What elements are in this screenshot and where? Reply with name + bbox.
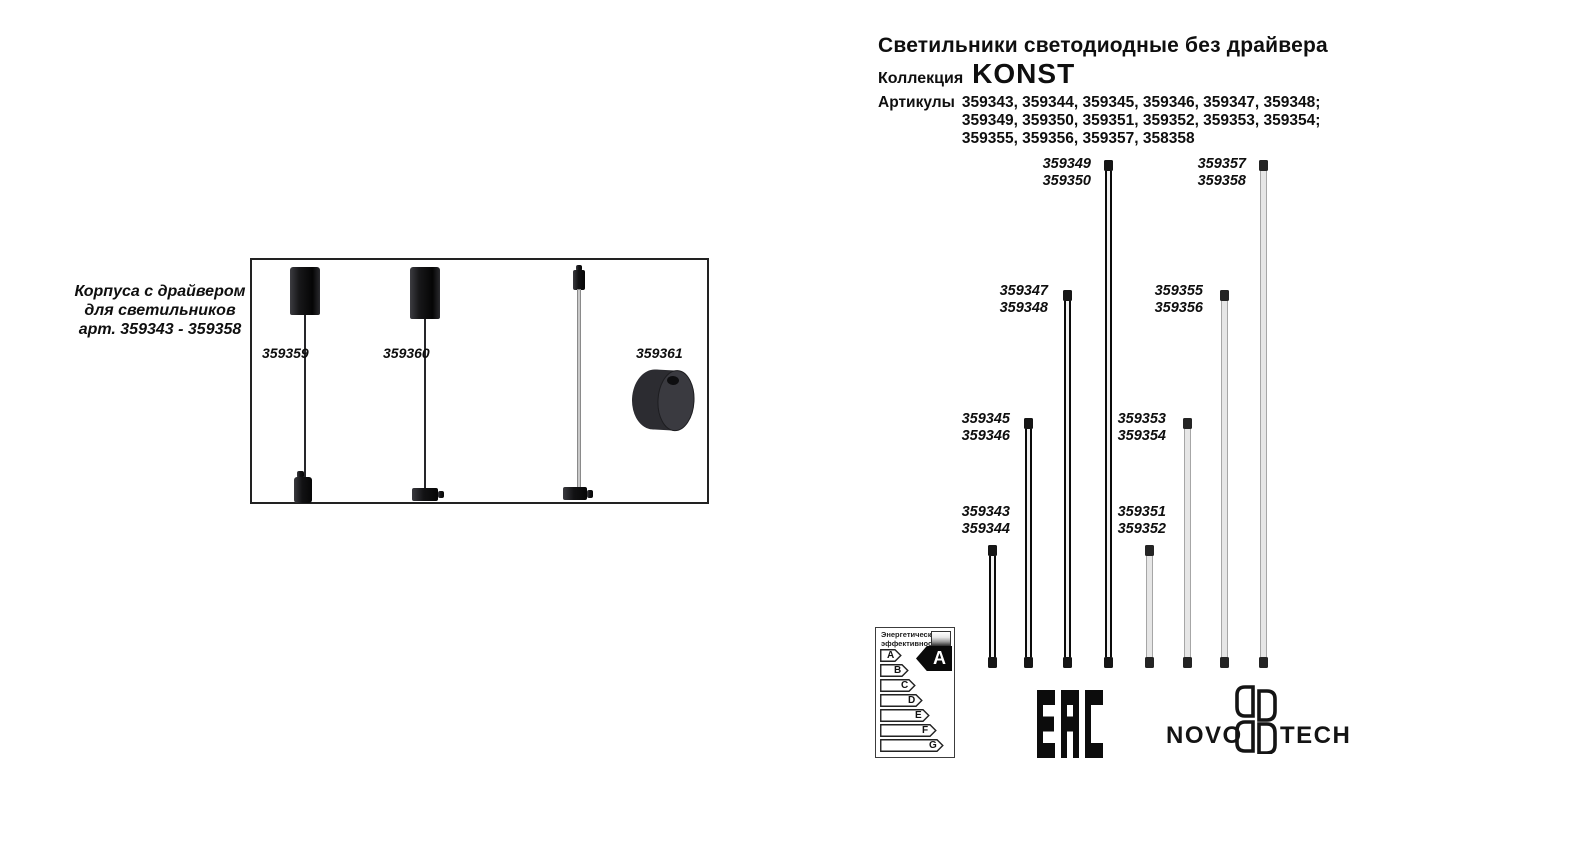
energy-class-row: A xyxy=(880,649,944,662)
brand-name-right: TECH xyxy=(1280,722,1351,750)
tube-label-359345-359346: 359345 359346 xyxy=(950,411,1010,444)
energy-gradient-icon xyxy=(931,631,951,648)
tube-label-359349-359350: 359349 359350 xyxy=(1031,156,1091,189)
white-suspension-cord-icon xyxy=(578,290,580,487)
caption-line: для светильников xyxy=(70,301,250,320)
driver-puck-icon xyxy=(628,366,699,433)
class-arrow-icon xyxy=(880,709,930,722)
caption-line: Корпуса с драйвером xyxy=(70,282,250,301)
tube-label-359357-359358: 359357 359358 xyxy=(1186,156,1246,189)
end-fitting-icon xyxy=(412,488,438,501)
part-label-359361: 359361 xyxy=(636,345,683,361)
collection-line: Коллекция KONST xyxy=(878,58,1075,90)
tube-label-359355-359356: 359355 359356 xyxy=(1143,283,1203,316)
energy-class-row: C xyxy=(880,679,944,692)
articles-line: 359349, 359350, 359351, 359352, 359353, … xyxy=(962,112,1321,130)
tube-359349-359350-icon xyxy=(1104,160,1113,668)
caption-line: арт. 359343 - 359358 xyxy=(70,320,250,339)
pendant-canopy-icon xyxy=(290,267,320,315)
tube-359343-359344-icon xyxy=(988,545,997,668)
eac-logo xyxy=(1037,690,1103,758)
tube-label-359343-359344: 359343 359344 xyxy=(950,504,1010,537)
catalog-page: Корпуса с драйвером для светильников арт… xyxy=(0,0,1587,858)
brand-emblem-icon xyxy=(1235,684,1277,754)
class-arrow-icon xyxy=(880,724,937,737)
end-fitting-icon xyxy=(294,477,312,503)
articles-block: Артикулы 359343, 359344, 359345, 359346,… xyxy=(878,94,1320,148)
page-title: Светильники светодиодные без драйвера xyxy=(878,34,1328,58)
articles-label: Артикулы xyxy=(878,94,955,148)
energy-class-scale: A B C D E F G xyxy=(880,649,944,754)
end-fitting-icon xyxy=(563,487,587,500)
class-arrow-icon xyxy=(880,694,923,707)
articles-lines: 359343, 359344, 359345, 359346, 359347, … xyxy=(962,94,1321,148)
tube-label-359353-359354: 359353 359354 xyxy=(1106,411,1166,444)
collection-label: Коллекция xyxy=(878,70,963,88)
energy-class-row: G xyxy=(880,739,944,752)
ceiling-grip-icon xyxy=(573,270,585,290)
tube-359357-359358-icon xyxy=(1259,160,1268,668)
energy-efficiency-label: Энергетическая эффективность A A B C D xyxy=(875,627,955,758)
tube-label-359351-359352: 359351 359352 xyxy=(1106,504,1166,537)
part-label-359359: 359359 xyxy=(262,345,309,361)
tube-359345-359346-icon xyxy=(1024,418,1033,668)
tube-359355-359356-icon xyxy=(1220,290,1229,668)
energy-class-row: B xyxy=(880,664,944,677)
articles-line: 359355, 359356, 359357, 358358 xyxy=(962,130,1321,148)
driver-housings-caption: Корпуса с драйвером для светильников арт… xyxy=(70,282,250,339)
pendant-canopy-icon xyxy=(410,267,440,319)
energy-class-row: F xyxy=(880,724,944,737)
tube-359351-359352-icon xyxy=(1145,545,1154,668)
cord-nub-icon xyxy=(438,491,444,498)
part-label-359360: 359360 xyxy=(383,345,430,361)
class-arrow-icon xyxy=(880,679,916,692)
tube-label-359347-359348: 359347 359348 xyxy=(988,283,1048,316)
energy-class-row: D xyxy=(880,694,944,707)
brand-name-left: NOVO xyxy=(1166,722,1243,750)
tube-359347-359348-icon xyxy=(1063,290,1072,668)
cord-nub-icon xyxy=(587,490,593,498)
collection-name: KONST xyxy=(972,58,1075,90)
tube-359353-359354-icon xyxy=(1183,418,1192,668)
energy-class-row: E xyxy=(880,709,944,722)
articles-line: 359343, 359344, 359345, 359346, 359347, … xyxy=(962,94,1321,112)
suspension-cord-icon xyxy=(304,315,306,477)
